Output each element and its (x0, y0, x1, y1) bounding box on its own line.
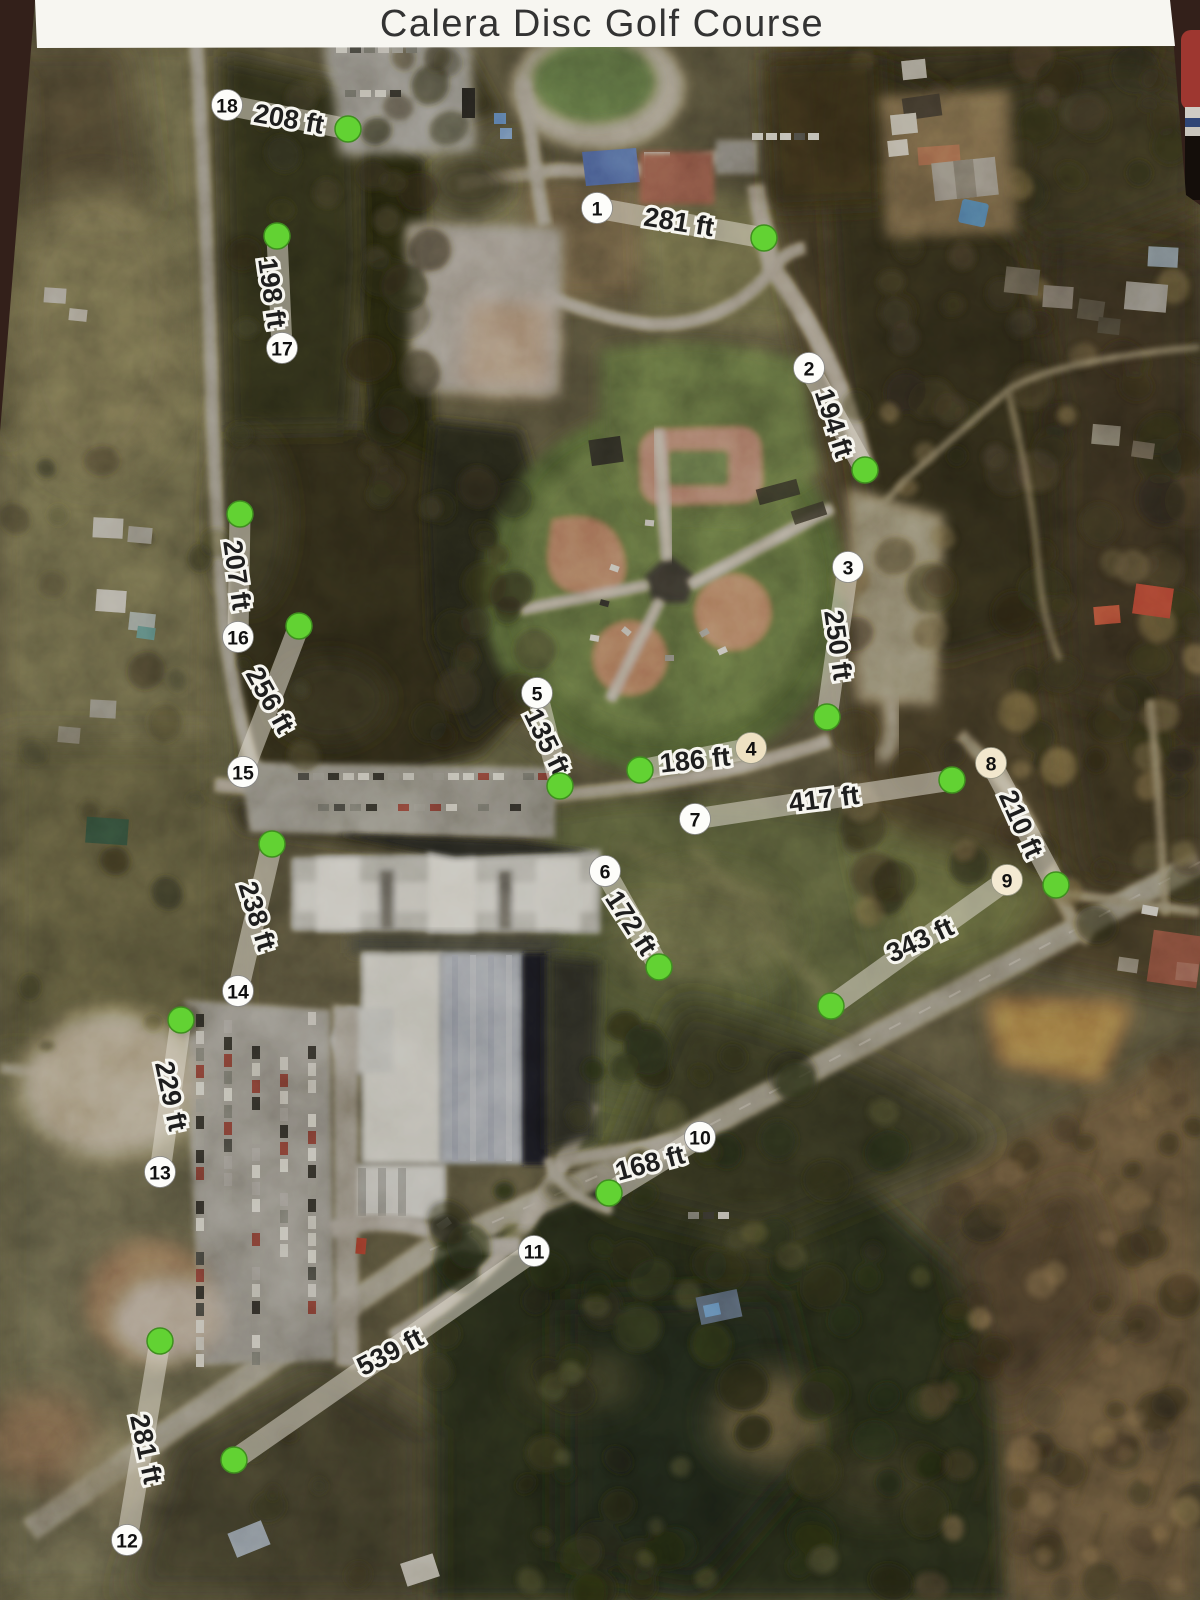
svg-text:4: 4 (746, 739, 757, 761)
svg-text:Calera Disc Golf Course: Calera Disc Golf Course (380, 3, 824, 45)
svg-text:18: 18 (216, 96, 238, 118)
svg-text:3: 3 (843, 558, 854, 580)
svg-text:10: 10 (689, 1128, 711, 1150)
svg-text:8: 8 (986, 754, 997, 776)
svg-text:9: 9 (1002, 871, 1013, 893)
svg-text:7: 7 (690, 810, 701, 832)
svg-text:14: 14 (227, 982, 249, 1004)
svg-text:1: 1 (592, 199, 603, 221)
svg-text:15: 15 (232, 763, 254, 785)
svg-text:11: 11 (524, 1242, 545, 1264)
svg-text:13: 13 (149, 1163, 171, 1185)
svg-text:17: 17 (271, 339, 293, 361)
svg-text:16: 16 (227, 628, 249, 650)
svg-text:2: 2 (804, 359, 815, 381)
svg-text:12: 12 (116, 1531, 138, 1553)
svg-text:6: 6 (600, 862, 611, 884)
svg-text:5: 5 (532, 684, 543, 706)
